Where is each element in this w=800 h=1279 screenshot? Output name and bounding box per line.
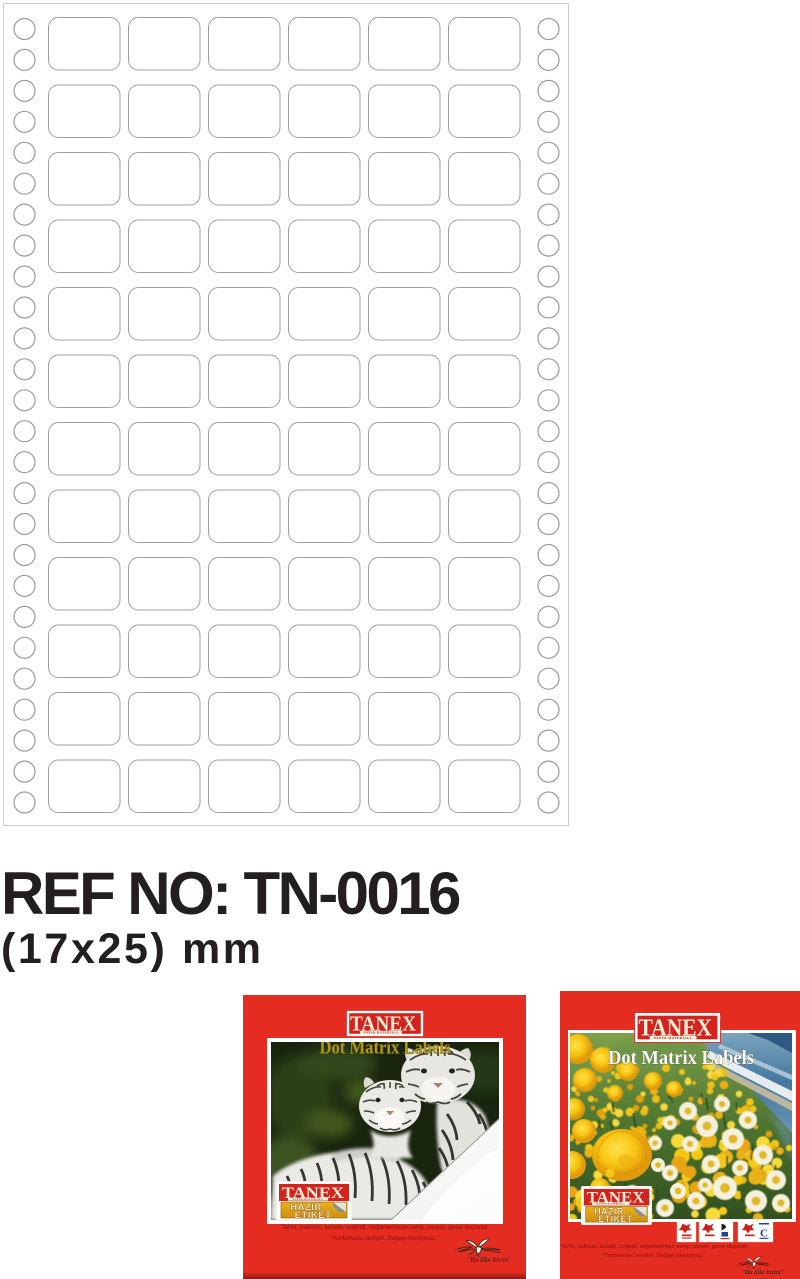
svg-text:®: ®	[421, 1012, 425, 1018]
svg-text:PAPER MATERIALS: PAPER MATERIALS	[364, 1032, 398, 1035]
svg-text:ETİKET: ETİKET	[295, 1210, 332, 1221]
svg-text:Dot Matrix Labels: Dot Matrix Labels	[320, 1042, 451, 1059]
svg-text:PAPER MATERIALS: PAPER MATERIALS	[293, 1198, 323, 1201]
svg-text:C: C	[760, 1228, 768, 1240]
